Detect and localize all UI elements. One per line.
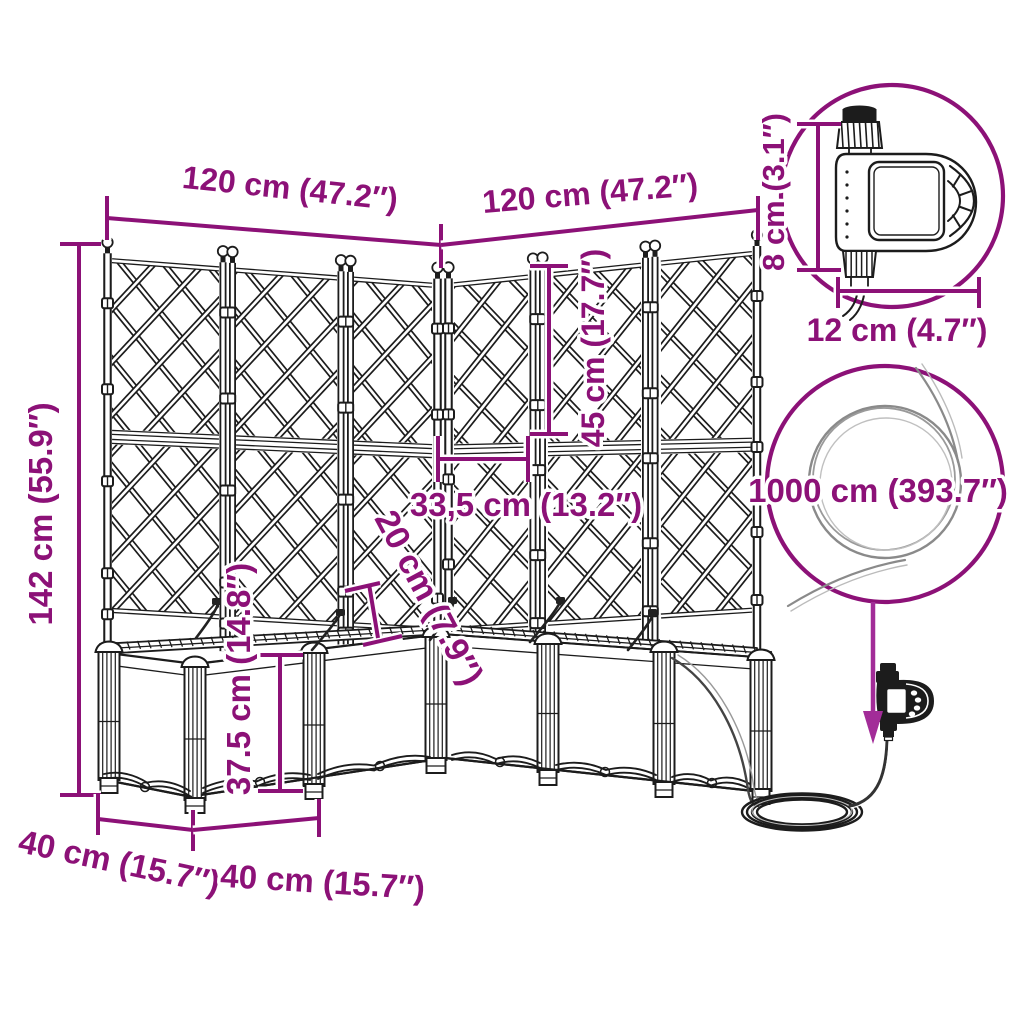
svg-text:12 cm (4.7″): 12 cm (4.7″) <box>807 312 988 348</box>
svg-text:8 cm (3.1″): 8 cm (3.1″) <box>756 113 791 271</box>
svg-text:45 cm (17.7″): 45 cm (17.7″) <box>575 249 611 448</box>
svg-text:142 cm (55.9″): 142 cm (55.9″) <box>22 402 59 625</box>
svg-text:1000 cm (393.7″): 1000 cm (393.7″) <box>748 472 1008 509</box>
svg-text:37.5 cm (14.8″): 37.5 cm (14.8″) <box>220 563 257 795</box>
svg-text:33,5 cm (13.2″): 33,5 cm (13.2″) <box>410 486 642 523</box>
